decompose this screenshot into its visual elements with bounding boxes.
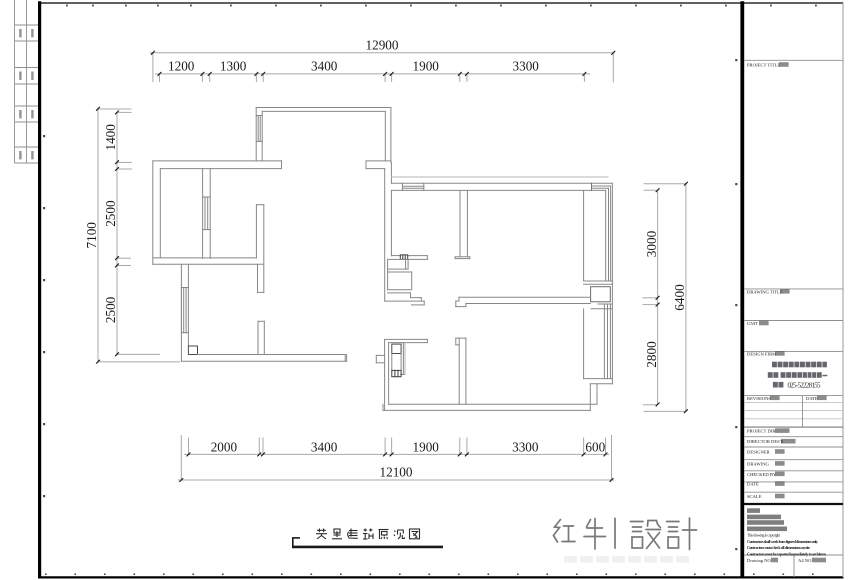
svg-text:7100: 7100 bbox=[84, 222, 99, 249]
svg-text:3300: 3300 bbox=[513, 59, 540, 74]
svg-text:1400: 1400 bbox=[103, 124, 118, 151]
svg-text:12100: 12100 bbox=[380, 465, 413, 480]
svg-text:Contractors shall work from fi: Contractors shall work from figured dime… bbox=[747, 539, 818, 544]
svg-text:1900: 1900 bbox=[413, 59, 440, 74]
svg-text:Contractors must check all dim: Contractors must check all dimensions on… bbox=[747, 545, 810, 550]
svg-text:2000: 2000 bbox=[211, 440, 238, 455]
svg-text:DESIGNER: DESIGNER bbox=[747, 450, 771, 455]
svg-text:Drawing NO: Drawing NO bbox=[747, 558, 772, 563]
svg-text:DRAWING TITLE: DRAWING TITLE bbox=[747, 289, 783, 294]
svg-text:025-52228155: 025-52228155 bbox=[788, 382, 822, 389]
svg-text:3300: 3300 bbox=[512, 440, 539, 455]
svg-text:2500: 2500 bbox=[103, 296, 118, 323]
svg-text:3000: 3000 bbox=[644, 230, 659, 257]
svg-text:DESIGN FIRM: DESIGN FIRM bbox=[747, 351, 776, 356]
svg-text:1300: 1300 bbox=[220, 59, 247, 74]
svg-text:2800: 2800 bbox=[644, 341, 659, 368]
svg-text:This drawing is copyright: This drawing is copyright bbox=[747, 533, 781, 538]
svg-text:3400: 3400 bbox=[311, 440, 338, 455]
svg-text:PROJECT TITLE: PROJECT TITLE bbox=[747, 63, 780, 68]
svg-text:CHECKED BY: CHECKED BY bbox=[747, 472, 777, 477]
svg-text:1200: 1200 bbox=[168, 59, 195, 74]
svg-text:6400: 6400 bbox=[672, 284, 687, 311]
svg-text:Contractors must be reported i: Contractors must be reported immediately… bbox=[747, 551, 826, 556]
svg-text:1900: 1900 bbox=[413, 440, 440, 455]
svg-text:2500: 2500 bbox=[103, 200, 118, 227]
svg-text:3400: 3400 bbox=[311, 59, 338, 74]
svg-text:DIRECTOR DES'R: DIRECTOR DES'R bbox=[747, 439, 785, 444]
svg-text:PROJECT DIR: PROJECT DIR bbox=[747, 429, 776, 434]
svg-text:DATE: DATE bbox=[747, 482, 759, 487]
svg-text:SCALE: SCALE bbox=[747, 494, 762, 499]
svg-text:REVISIONS: REVISIONS bbox=[747, 396, 771, 401]
svg-text:A4 NO: A4 NO bbox=[798, 558, 812, 563]
svg-text:12900: 12900 bbox=[366, 38, 399, 53]
svg-text:DRAWING: DRAWING bbox=[747, 461, 770, 466]
svg-text:600: 600 bbox=[585, 440, 605, 455]
svg-text:UNIT: UNIT bbox=[747, 321, 758, 326]
svg-text:DATE: DATE bbox=[806, 396, 818, 401]
